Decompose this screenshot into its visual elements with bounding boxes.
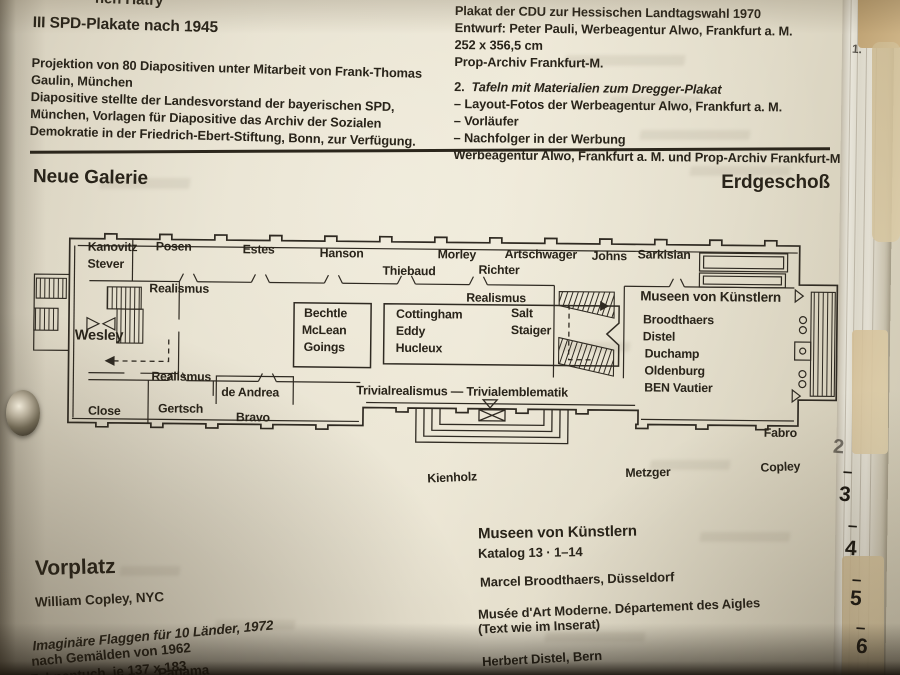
floorplan-label: Fabro [764, 426, 797, 440]
floorplan-label: Hucleux [396, 341, 443, 355]
artist-name: William Copley, NYC [35, 589, 165, 610]
floorplan-label: Broodthaers [643, 312, 714, 327]
left-text-column: III SPD-Plakate nach 1945 Projektion von… [30, 14, 424, 150]
floorplan-label: Goings [304, 340, 345, 354]
artist-name: Marcel Broodthaers, Düsseldorf [480, 569, 675, 589]
floorplan: KanovitzSteverPosenEstesHansonThiebaudMo… [27, 222, 845, 493]
floorplan-label: Bechtle [304, 306, 347, 320]
floorplan-label: Estes [243, 242, 275, 256]
floorplan-label: Kanovitz [88, 240, 138, 255]
floorplan-label: Eddy [396, 324, 425, 338]
floorplan-label: Realismus [149, 281, 209, 296]
floorplan-label: Stever [87, 257, 124, 271]
floor-label-erdgeschoss: Erdgeschoß [721, 172, 830, 194]
floorplan-label: Distel [643, 329, 675, 343]
floorplan-drawing [27, 222, 845, 493]
entrance-steps [416, 399, 568, 444]
tape-patch [852, 330, 888, 454]
photographed-catalog-page: hen Hatry III SPD-Plakate nach 1945 Proj… [0, 0, 900, 675]
floorplan-label: Metzger [625, 465, 670, 480]
floorplan-label: Realismus [466, 291, 526, 306]
item-title: Tafeln mit Materialien zum Dregger-Plaka… [471, 79, 721, 97]
floorplan-label: Gertsch [158, 401, 203, 415]
floorplan-label: Hanson [320, 246, 364, 260]
floorplan-label: Richter [478, 263, 519, 277]
floorplan-label: Johns [592, 249, 627, 263]
floorplan-label: Morley [438, 247, 477, 261]
catalog-number: Katalog 13 · 1–14 [478, 544, 583, 561]
tape-patch [842, 556, 884, 675]
artist-name: Herbert Distel, Bern [482, 648, 603, 669]
floorplan-label: Posen [156, 239, 192, 253]
floorplan-label: Duchamp [645, 346, 700, 361]
floorplan-label: Staiger [511, 323, 551, 337]
item-number: 2. [454, 79, 465, 94]
floorplan-label: Copley [760, 459, 800, 475]
work-title: Musée d'Art Moderne. Département des Aig… [478, 595, 761, 622]
floorplan-label: Oldenburg [644, 363, 705, 378]
floorplan-label: Artschwager [505, 247, 577, 262]
floorplan-label: Museen von Künstlern [640, 288, 781, 304]
floorplan-label: Trivialrealismus — Trivialemblematik [356, 383, 568, 399]
floorplan-label: McLean [302, 323, 347, 337]
museen-heading: Museen von Künstlern [478, 523, 637, 543]
floorplan-label: Salt [511, 306, 533, 320]
floorplan-label: Bravo [236, 410, 270, 424]
section-heading-spd: III SPD-Plakate nach 1945 [32, 14, 423, 43]
clipped-previous-line: hen Hatry [95, 0, 164, 9]
floorplan-label: Cottingham [396, 307, 462, 322]
floorplan-label: Realismus [151, 369, 211, 384]
tape-patch [872, 42, 900, 242]
floorplan-label: Thiebaud [382, 264, 435, 279]
floorplan-label: Sarkisian [638, 247, 691, 262]
floorplan-label: Kienholz [427, 469, 477, 485]
floorplan-label: BEN Vautier [644, 380, 712, 395]
page-title-neue-galerie: Neue Galerie [33, 166, 148, 190]
floorplan-label: de Andrea [221, 385, 279, 400]
binding-grommet [6, 390, 40, 436]
tape-patch [858, 0, 900, 48]
right-text-column: Plakat der CDU zur Hessischen Landtagswa… [453, 2, 845, 167]
floorplan-label: Wesley [75, 327, 124, 344]
vorplatz-heading: Vorplatz [35, 555, 116, 581]
floorplan-label: Close [88, 404, 121, 418]
